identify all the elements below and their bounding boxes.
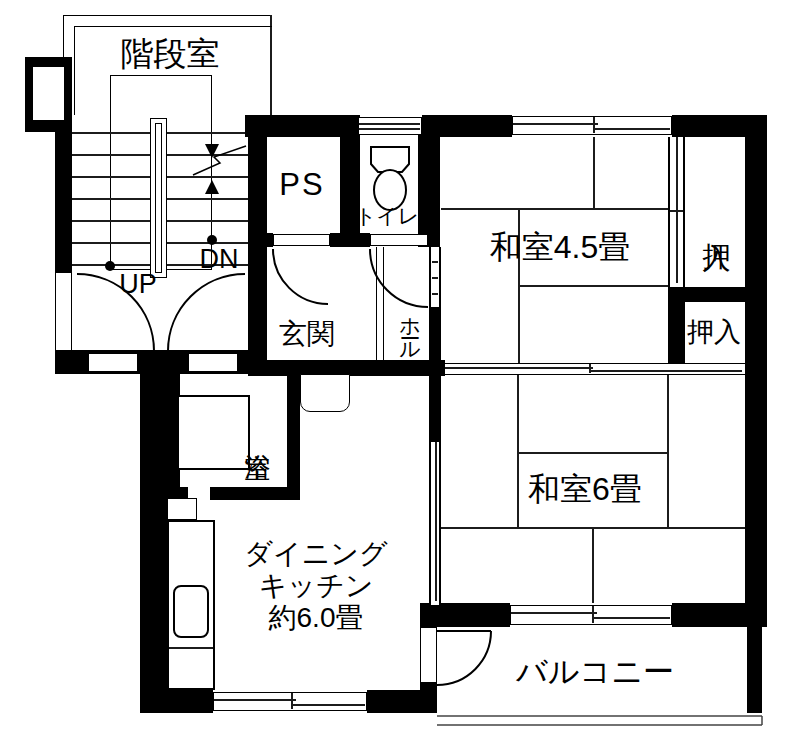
balcony-right-wall	[747, 627, 762, 713]
tatami-line	[518, 285, 668, 287]
stair-left-wall	[55, 130, 72, 272]
toilet-washitsu-wall	[418, 133, 440, 247]
genkan-door-sill	[273, 234, 330, 246]
balcony-door-sill	[420, 627, 437, 683]
room-label-stairwell: 階段室	[90, 34, 250, 74]
oshiire-divider-wall	[668, 287, 745, 302]
bathroom-right-wall	[287, 373, 300, 487]
room-label-washitsu6: 和室6畳	[478, 468, 692, 510]
right-wall	[745, 115, 767, 627]
room-label-hall: ホール	[394, 283, 426, 371]
washitsu6-bottom-wall	[672, 603, 747, 627]
washitsu6-bottom-wall	[420, 603, 510, 627]
toilet-icon	[371, 147, 409, 172]
tatami-line	[592, 527, 594, 603]
stair-door-sill	[188, 353, 238, 372]
stair-up-label: UP	[103, 270, 173, 300]
room-label-washitsu45: 和室4.5畳	[448, 227, 672, 267]
dk-bottom-wall	[367, 690, 437, 713]
floor-plan: 階段室 PS トイレ 玄関 ホール 和室4.5畳 押入 押入 和室6畳 浴室 ダ…	[0, 0, 787, 747]
dk-washitsu6-wall	[429, 377, 441, 442]
washitsu-fusuma-band	[441, 363, 745, 375]
tatami-line	[593, 137, 595, 208]
ps-bottom-wall	[330, 233, 360, 247]
dk-window	[213, 692, 367, 711]
toilet-door-sill	[370, 234, 428, 246]
stair-door-sill	[88, 353, 138, 372]
dk-label-line3: 約6.0畳	[269, 602, 364, 634]
room-label-bathroom: 浴室	[240, 400, 274, 466]
landing-left-opening	[55, 272, 72, 351]
toilet-window	[358, 117, 422, 135]
dk-label-line1: ダイニング	[244, 538, 387, 570]
stair-dn-label: DN	[188, 245, 250, 275]
dk-washitsu6-sliding-door	[429, 442, 441, 605]
kitchen-range	[167, 498, 197, 520]
ps-bottom-wall	[248, 233, 273, 247]
washbasin	[300, 374, 350, 412]
room-label-ps: PS	[264, 165, 340, 205]
kitchen-sink	[173, 585, 209, 638]
stair-handrail-inner	[155, 123, 162, 273]
tatami-line	[517, 452, 667, 454]
balcony-railing	[437, 716, 762, 725]
dk-left-wall	[140, 498, 167, 713]
tatami-line	[441, 208, 668, 210]
toilet-bottom-wall	[428, 233, 440, 247]
genkan-hall-step	[376, 247, 384, 360]
washitsu6-balcony-window	[510, 605, 672, 625]
dk-label-line2: キッチン	[259, 570, 374, 602]
washitsu45-window	[512, 116, 672, 135]
room-label-toilet: トイレ	[350, 203, 424, 229]
bathroom-bottom-wall	[210, 487, 300, 500]
room-label-oshiire-lower: 押入	[683, 317, 745, 349]
room-label-oshiire-upper: 押入	[694, 172, 738, 270]
room-label-dining-kitchen: ダイニング キッチン 約6.0畳	[228, 532, 404, 640]
dk-bottom-wall	[140, 690, 213, 713]
genkan-door-arc	[273, 249, 328, 304]
stair-protrusion-window	[33, 67, 64, 120]
toilet-bottom-wall	[360, 233, 370, 247]
hall-washitsu45-sliding-door	[429, 247, 441, 307]
bathroom-left-wall	[140, 373, 180, 498]
room-label-balcony: バルコニー	[478, 653, 712, 691]
room-label-genkan: 玄関	[268, 317, 346, 351]
